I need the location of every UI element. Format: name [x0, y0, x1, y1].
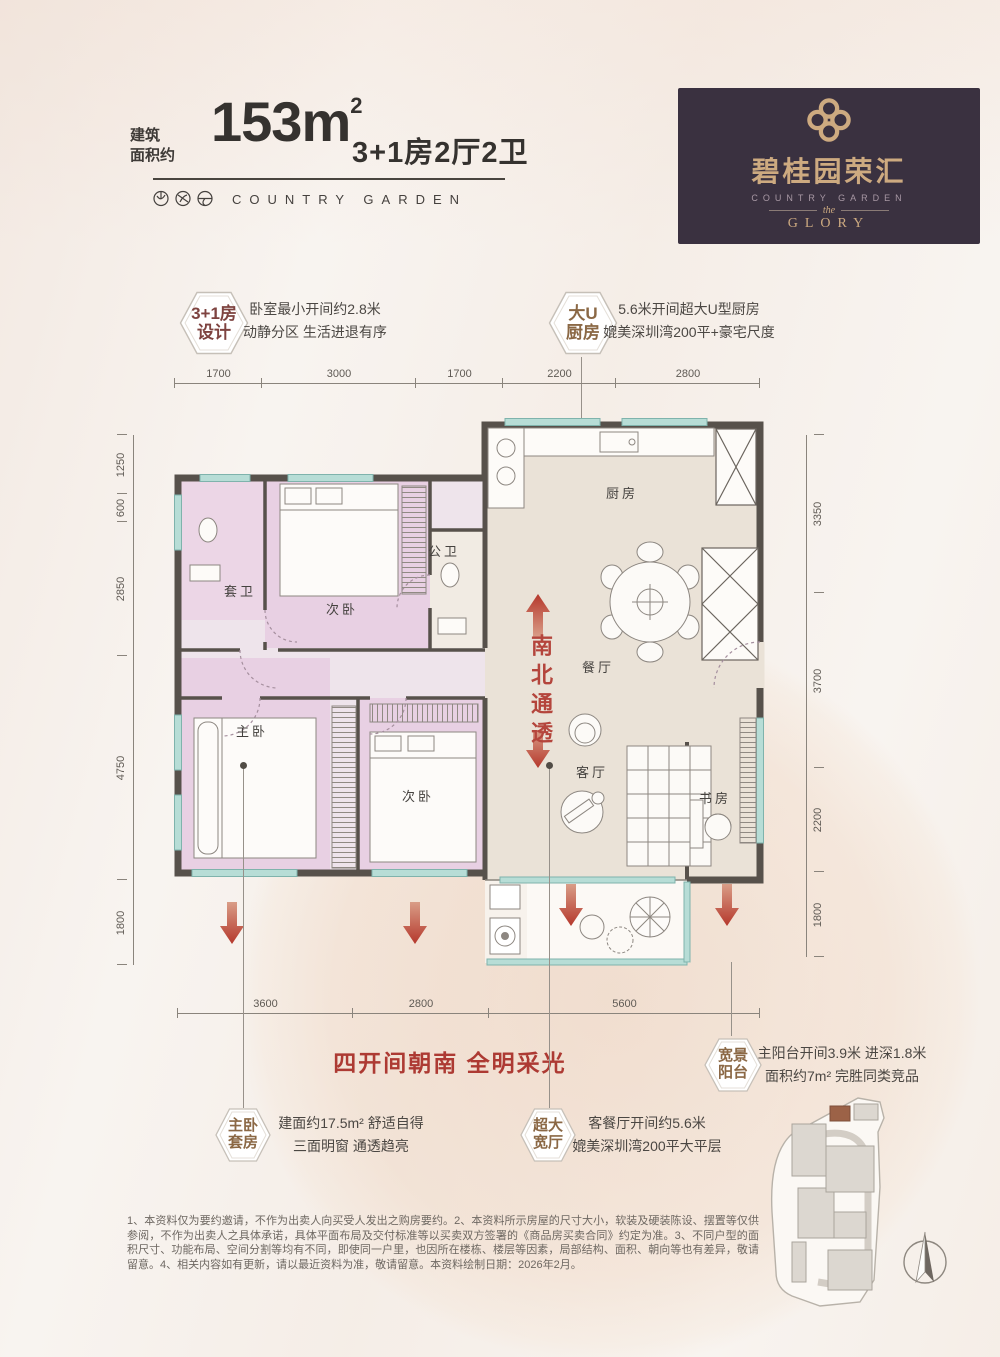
logo-brand-en: COUNTRY GARDEN [678, 193, 980, 203]
callout-desc-design: 卧室最小开间约2.8米 动静分区 生活进退有序 [230, 298, 400, 344]
area-label: 建筑 面积约 [130, 126, 175, 167]
layout-text: 3+1房2厅2卫 [352, 129, 528, 171]
badge-kitchen-line1: 大U [568, 304, 597, 323]
toilet-icon [441, 563, 459, 587]
compass-icon [890, 1222, 960, 1302]
site-highlight-building [830, 1106, 850, 1121]
connector-balcony [731, 962, 732, 1036]
badge-design-line2: 设计 [197, 323, 231, 342]
area-number: 153 [211, 90, 301, 153]
disclaimer-text: 1、本资料仅为要约邀请，不作为出卖人向买受人发出之购房要约。2、本资料所示房屋的… [127, 1214, 759, 1272]
header-underline [153, 178, 505, 180]
logo-divider: the [678, 205, 980, 216]
desk [690, 800, 703, 848]
sink-icon [600, 432, 638, 452]
callout-desc-living: 客餐厅开间约5.6米 媲美深圳湾200平大平层 [558, 1112, 736, 1158]
connector-living-dot [546, 762, 553, 769]
brand-logo-box: 碧桂园荣汇 COUNTRY GARDEN the GLORY [678, 88, 980, 244]
room-label-dining: 餐厅 [582, 660, 614, 675]
ns-through-label: 南北通透 [524, 634, 556, 750]
wardrobe [402, 486, 426, 594]
area-unit: m [301, 90, 350, 153]
area-label-line2: 面积约 [130, 146, 175, 166]
badge-balcony-line2: 阳台 [718, 1065, 748, 1082]
wardrobe [332, 706, 356, 868]
brand-text: COUNTRY GARDEN [232, 192, 467, 207]
callout-desc-master: 建面约17.5m² 舒适自得 三面明窗 通透趋亮 [262, 1112, 440, 1158]
room-label-bedroom3: 次卧 [402, 789, 434, 804]
callout-desc-balcony: 主阳台开间3.9米 进深1.8米 面积约7m² 完胜同类竞品 [752, 1042, 932, 1088]
south-arrow [220, 902, 244, 944]
connector-master-dot [240, 762, 247, 769]
room-label-master: 主卧 [236, 724, 268, 739]
dims-bottom: 3600 2800 5600 [178, 996, 760, 1014]
area-unit-sup: 2 [350, 93, 362, 118]
room-label-study: 书房 [699, 791, 731, 806]
connector-living [549, 766, 550, 1108]
room-label-living: 客厅 [576, 765, 608, 780]
south-arrow [403, 902, 427, 944]
logo-brand-cn: 碧桂园荣汇 [678, 150, 980, 190]
room-label-kitchen: 厨房 [606, 486, 638, 501]
clover-logo-icon [807, 98, 851, 142]
callout-desc-kitchen: 5.6米开间超大U型厨房 媲美深圳湾200平+豪宅尺度 [599, 298, 779, 344]
area-label-line1: 建筑 [130, 126, 175, 146]
dim-segment: 2800 [353, 996, 489, 1014]
window-mullions [740, 718, 756, 843]
badge-master-line1: 主卧 [228, 1118, 258, 1135]
floor-plan: 厨房 餐厅 客厅 书房 主卧 次卧 次卧 套卫 公卫 [130, 380, 870, 980]
south-arrow [715, 884, 739, 926]
cert-icons-svg [153, 190, 219, 207]
dim-segment: 5600 [489, 996, 760, 1014]
room-label-public-bath: 公卫 [428, 544, 460, 559]
toilet-icon [199, 518, 217, 542]
logo-glory: GLORY [678, 216, 980, 232]
badge-kitchen-line2: 厨房 [566, 323, 600, 342]
area-value: 153m2 [211, 94, 362, 150]
room-label-ensuite-bath: 套卫 [224, 584, 256, 599]
connector-master [243, 766, 244, 1108]
armchair [569, 714, 601, 746]
closet-rail [370, 704, 478, 722]
dim-segment: 3600 [178, 996, 353, 1014]
slogan-text: 四开间朝南 全明采光 [280, 1044, 620, 1078]
flyer-page: 建筑 面积约 153m2 3+1房2厅2卫 COUNTRY GARDEN 碧桂园… [0, 0, 1000, 1357]
badge-master-line2: 套房 [228, 1135, 258, 1152]
logo-the: the [823, 205, 835, 216]
cert-icons [153, 190, 219, 207]
badge-balcony-line1: 宽景 [718, 1048, 748, 1065]
room-label-bedroom2: 次卧 [326, 602, 358, 617]
